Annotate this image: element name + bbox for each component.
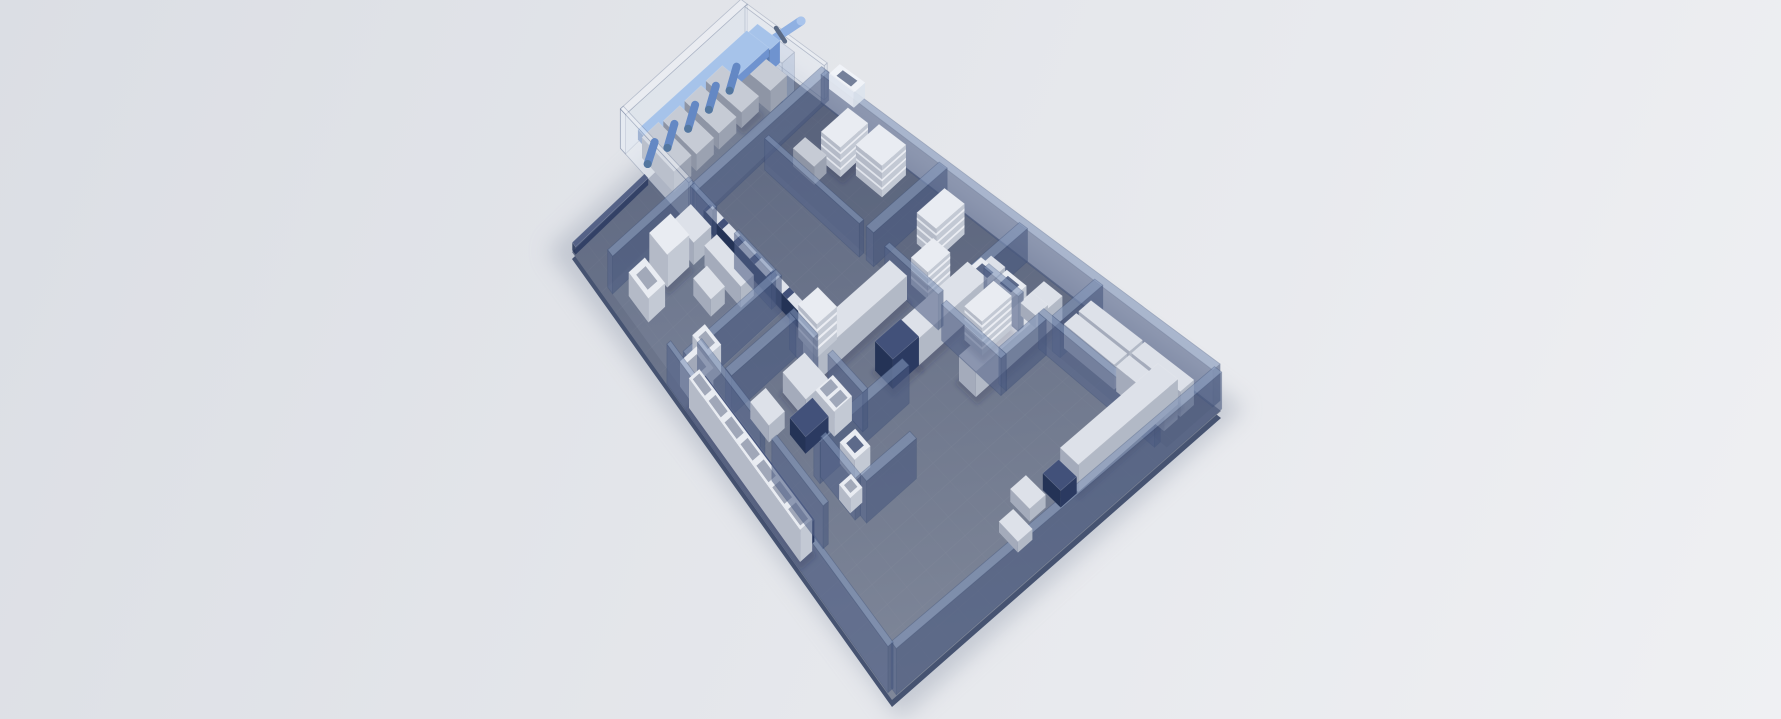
render-viewport — [0, 0, 1781, 719]
facility-floorplan-render — [0, 0, 1781, 719]
